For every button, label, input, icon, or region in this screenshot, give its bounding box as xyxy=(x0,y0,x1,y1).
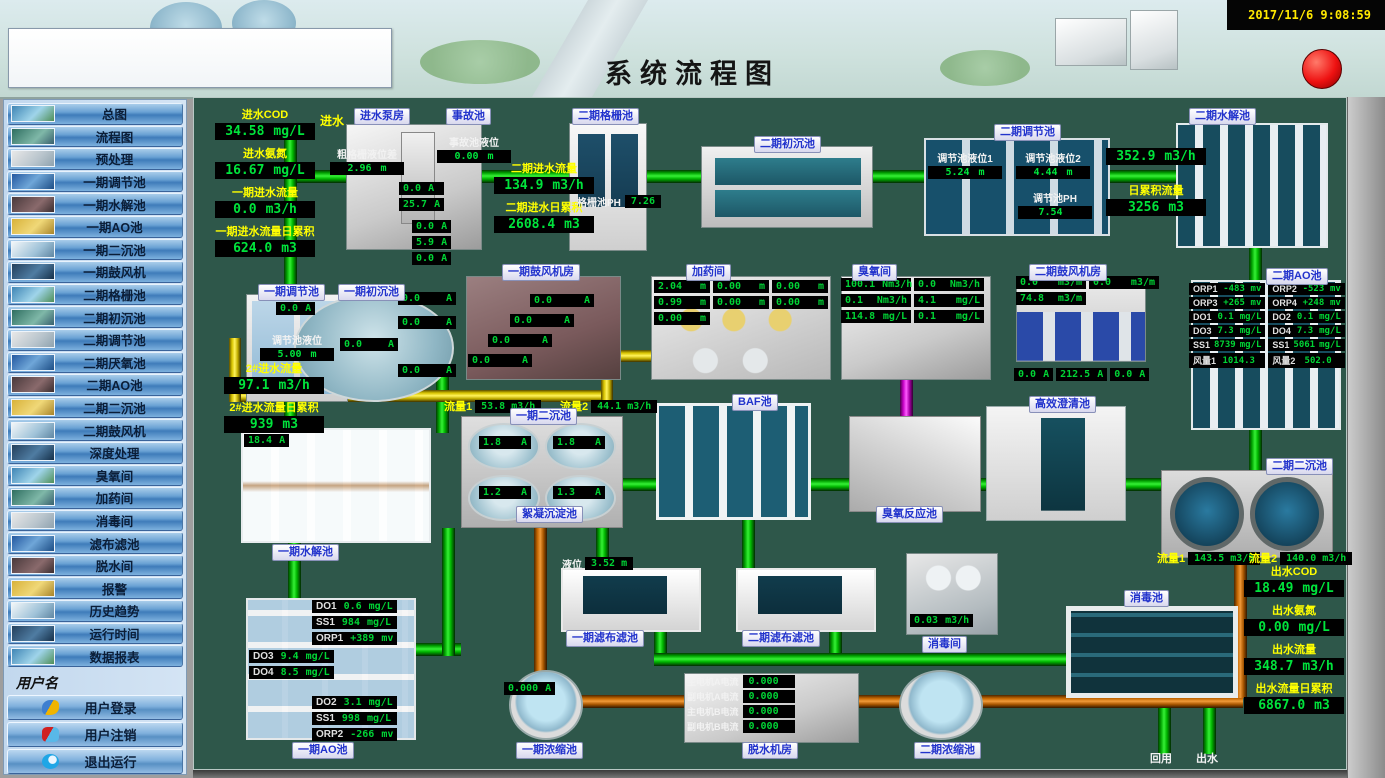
current-readout: 1.2A xyxy=(479,486,531,499)
sensor-readout: DO47.3mg/L xyxy=(1268,325,1344,337)
sidebar-item[interactable]: 流程图 xyxy=(7,126,183,148)
window-edge xyxy=(193,770,1347,778)
page-title: 系统流程图 xyxy=(0,52,1385,91)
disinfect-pool-image xyxy=(1066,606,1238,698)
sensor-readout: ORP3+265mv xyxy=(1189,297,1265,309)
regulating-level-1: 调节池液位1 5.24m xyxy=(928,150,1002,179)
sidebar-item[interactable]: 二期格栅池 xyxy=(7,284,183,306)
user-buttons: 用户登录 用户注销 退出运行 xyxy=(6,695,184,774)
sidebar-item[interactable]: 深度处理 xyxy=(7,442,183,464)
ozone-readout: 0.1mg/L xyxy=(914,310,984,323)
hydrolysis-flow: 352.9m3/h xyxy=(1106,148,1206,165)
sidebar-item[interactable]: 报警 xyxy=(7,577,183,599)
sidebar-nav: 总图 流程图 预处理 一期调节池 xyxy=(6,103,184,667)
sensor-readout: DO23.1mg/L xyxy=(312,696,397,709)
sidebar-item[interactable]: 二期厌氧池 xyxy=(7,352,183,374)
thumbnail-icon xyxy=(11,196,55,213)
current-readout: 1.8A xyxy=(479,436,531,449)
station-label-disinfect-pool[interactable]: 消毒池 xyxy=(1124,590,1169,607)
sensor-readout: 风量2502.0 xyxy=(1268,353,1344,368)
sensor-readout: DO48.5mg/L xyxy=(249,666,334,679)
reuse-label: 回用 xyxy=(1150,750,1172,766)
user-button[interactable]: 用户注销 xyxy=(7,722,183,747)
current-readout: 212.5A xyxy=(1056,368,1107,381)
thumbnail-icon xyxy=(11,241,55,258)
sidebar-item-label: 二期格栅池 xyxy=(55,285,182,304)
sidebar-item[interactable]: 二期调节池 xyxy=(7,329,183,351)
thumbnail-icon xyxy=(11,354,55,371)
thumbnail-icon xyxy=(11,263,55,280)
regulating-level-2: 调节池液位2 4.44m xyxy=(1016,150,1090,179)
thumbnail-icon xyxy=(11,286,55,303)
user-login-icon xyxy=(42,700,59,715)
sidebar-item[interactable]: 二期鼓风机 xyxy=(7,419,183,441)
regulating-ph: 调节池PH 7.54 xyxy=(1018,190,1092,219)
inflow2-metrics: 2#进水流量 97.1m3/h 2#进水流量日累积 939m3 xyxy=(224,360,324,433)
sensor-readout: SS18739mg/L xyxy=(1189,339,1265,351)
station-label-filter1[interactable]: 一期滤布滤池 xyxy=(566,630,644,647)
station-label-phase1-hydrolysis[interactable]: 一期水解池 xyxy=(272,544,339,561)
sensor-readout: ORP1+389mv xyxy=(312,632,397,645)
station-label-disinfect-room[interactable]: 消毒间 xyxy=(922,636,967,653)
sidebar: 总图 流程图 预处理 一期调节池 xyxy=(3,99,187,775)
metric: 进水COD 34.58mg/L xyxy=(215,106,315,140)
sidebar-item[interactable]: 数据报表 xyxy=(7,645,183,667)
sidebar-item[interactable]: 一期调节池 xyxy=(7,171,183,193)
sidebar-item-label: 流程图 xyxy=(55,127,182,146)
station-label-phase1-blower[interactable]: 一期鼓风机房 xyxy=(502,264,580,281)
station-label-phase1-secondary[interactable]: 一期二沉池 xyxy=(510,408,577,425)
current-readout: 0.0A xyxy=(398,292,456,305)
motor-current-row: 副电机B电流0.000 xyxy=(687,720,795,733)
sidebar-item[interactable]: 一期AO池 xyxy=(7,216,183,238)
current-readout: 0.0A xyxy=(468,354,532,367)
user-button-label: 用户登录 xyxy=(59,698,182,717)
user-button[interactable]: 用户登录 xyxy=(7,695,183,720)
sidebar-item[interactable]: 总图 xyxy=(7,103,183,125)
sidebar-item-label: 一期水解池 xyxy=(55,195,182,214)
station-label-phase1-ao[interactable]: 一期AO池 xyxy=(292,742,354,759)
thumbnail-icon xyxy=(11,535,55,552)
sensor-readout: ORP4+248mv xyxy=(1268,297,1344,309)
ozone-readout: 0.1Nm3/h xyxy=(841,294,911,307)
station-label-ozone-reaction[interactable]: 臭氧反应池 xyxy=(876,506,943,523)
sidebar-item[interactable]: 脱水间 xyxy=(7,555,183,577)
screen-ph: 格栅池PH 7.26 xyxy=(577,194,661,209)
sidebar-item-label: 一期调节池 xyxy=(55,172,182,191)
current-readout: 0.0A xyxy=(1014,368,1053,381)
ozone-reaction-image xyxy=(849,416,981,512)
header-banner: 系统流程图 2017/11/6 9:08:59 xyxy=(0,0,1385,99)
sidebar-item-label: 深度处理 xyxy=(55,443,182,462)
metric: 2#进水流量 97.1m3/h xyxy=(224,360,324,394)
metric: 一期进水流量 0.0m3/h xyxy=(215,184,315,218)
thumbnail-icon xyxy=(11,580,55,597)
sidebar-item[interactable]: 二期AO池 xyxy=(7,374,183,396)
station-label-thickener1[interactable]: 一期浓缩池 xyxy=(516,742,583,759)
sidebar-item[interactable]: 加药间 xyxy=(7,487,183,509)
current-readout: 1.3A xyxy=(553,486,605,499)
sidebar-item-label: 消毒间 xyxy=(55,511,182,530)
outflow-label: 出水 xyxy=(1196,750,1218,766)
level-readout: 0.99m xyxy=(654,296,710,309)
thumbnail-icon xyxy=(11,625,55,642)
level-readout: 0.00m xyxy=(713,296,769,309)
station-label-baf[interactable]: BAF池 xyxy=(732,394,778,411)
sidebar-item-label: 运行时间 xyxy=(55,624,182,643)
phase2-blower-currents: 0.0A212.5A0.0A xyxy=(1014,368,1149,381)
sidebar-item-label: 二期AO池 xyxy=(55,375,182,394)
sidebar-item-label: 报警 xyxy=(55,579,182,598)
sensor-readout: DO10.1mg/L xyxy=(1189,311,1265,323)
ozone-readout: 114.8mg/L xyxy=(841,310,911,323)
metric: 出水COD 18.49mg/L xyxy=(1244,563,1344,597)
station-label-thickener2[interactable]: 二期浓缩池 xyxy=(914,742,981,759)
station-label-phase2-regulating[interactable]: 二期调节池 xyxy=(994,124,1061,141)
filter1-level: 液位 3.52m xyxy=(562,556,633,571)
sidebar-item-label: 滤布滤池 xyxy=(55,534,182,553)
sidebar-item[interactable]: 一期鼓风机 xyxy=(7,261,183,283)
timestamp: 2017/11/6 9:08:59 xyxy=(1248,8,1371,22)
clarifier-circle xyxy=(1170,477,1244,551)
metric: 二期进水流量 134.9m3/h xyxy=(494,160,594,194)
sensor-readout: DO39.4mg/L xyxy=(249,650,334,663)
station-label-phase2-primary[interactable]: 二期初沉池 xyxy=(754,136,821,153)
station-label-phase2-secondary[interactable]: 二期二沉池 xyxy=(1266,458,1333,475)
current-readout: 1.8A xyxy=(553,436,605,449)
sensor-readout: SS1998mg/L xyxy=(312,712,397,725)
hydrolysis-daily-total: 日累积流量 3256m3 xyxy=(1106,182,1206,216)
station-label-flocculation[interactable]: 絮凝沉淀池 xyxy=(516,506,583,523)
level-readout: 0.00m xyxy=(772,296,828,309)
station-label-dosing-room[interactable]: 加药间 xyxy=(686,264,731,281)
thumbnail-icon xyxy=(11,218,55,235)
pipe xyxy=(654,653,1074,666)
metric: 出水流量 348.7m3/h xyxy=(1244,641,1344,675)
thumbnail-icon xyxy=(11,557,55,574)
sensor-readout: SS15061mg/L xyxy=(1268,339,1344,351)
motor-current-row: 主电机A电流0.000 xyxy=(687,675,795,688)
current-readout: 0.0A xyxy=(488,334,552,347)
sidebar-item[interactable]: 消毒间 xyxy=(7,510,183,532)
thumbnail-icon xyxy=(11,331,55,348)
thumbnail-icon xyxy=(11,376,55,393)
station-label-phase2-blower[interactable]: 二期鼓风机房 xyxy=(1029,264,1107,281)
sidebar-item-label: 一期鼓风机 xyxy=(55,262,182,281)
accident-pool-metrics: 事故池液位 0.00m xyxy=(437,134,511,163)
sidebar-item-label: 二期鼓风机 xyxy=(55,421,182,440)
metric: 事故池液位 0.00m xyxy=(437,134,511,163)
thumbnail-icon xyxy=(11,648,55,665)
sidebar-item-label: 总图 xyxy=(55,104,182,123)
station-label-ozone-room[interactable]: 臭氧间 xyxy=(852,264,897,281)
sidebar-item[interactable]: 一期二沉池 xyxy=(7,239,183,261)
station-label-phase1-primary[interactable]: 一期初沉池 xyxy=(338,284,405,301)
flow-readout: 0.03m3/h xyxy=(910,614,973,627)
sidebar-item-label: 加药间 xyxy=(55,488,182,507)
user-button[interactable]: 退出运行 xyxy=(7,749,183,774)
thumbnail-icon xyxy=(11,489,55,506)
filter1-image xyxy=(561,568,701,632)
inlet-metrics: 进水COD 34.58mg/L 进水氨氮 16.67mg/L 一期进水流量 0.… xyxy=(202,106,328,257)
sidebar-item-label: 预处理 xyxy=(55,149,182,168)
current-readout: 0.0A xyxy=(399,182,444,195)
phase2-secondary-image xyxy=(1161,470,1333,558)
sidebar-item-label: 一期AO池 xyxy=(55,217,182,236)
exit-run-icon xyxy=(42,754,59,769)
ozone-readout: 0.0Nm3/h xyxy=(914,278,984,291)
sensor-readout: DO37.3mg/L xyxy=(1189,325,1265,337)
alarm-indicator[interactable] xyxy=(1302,49,1342,89)
user-button-label: 用户注销 xyxy=(59,725,182,744)
phase1-ao-group3: DO23.1mg/LSS1998mg/LORP2-266mv xyxy=(312,696,397,741)
current-readout: 0.0A xyxy=(398,316,456,329)
phase2-ao-readouts: ORP1-483mvORP2-523mvORP3+265mvORP4+248mv… xyxy=(1189,283,1345,368)
sidebar-item[interactable]: 预处理 xyxy=(7,148,183,170)
level-readout: 0.00m xyxy=(713,280,769,293)
thumbnail-icon xyxy=(11,602,55,619)
sensor-readout: DO10.6mg/L xyxy=(312,600,397,613)
thumbnail-icon xyxy=(11,512,55,529)
metric: 一期进水流量日累积 624.0m3 xyxy=(215,223,315,257)
pump-currents-2: 0.0A5.9A0.0A xyxy=(412,220,451,265)
sidebar-item-label: 历史趋势 xyxy=(55,601,182,620)
motor-current-row: 副电机A电流0.000 xyxy=(687,690,795,703)
clarifier-image xyxy=(986,406,1126,521)
station-label-pump-house[interactable]: 进水泵房 xyxy=(354,108,410,125)
dosing-levels: 2.04m0.00m0.00m0.99m0.00m0.00m0.00m xyxy=(654,280,830,325)
coarse-screen-level: 粗格栅液位差 2.96m xyxy=(330,146,404,175)
metric: 进水氨氮 16.67mg/L xyxy=(215,145,315,179)
sidebar-item-label: 臭氧间 xyxy=(55,466,182,485)
level-readout: 2.04m xyxy=(654,280,710,293)
sensor-readout: ORP1-483mv xyxy=(1189,283,1265,295)
sensor-readout: DO20.1mg/L xyxy=(1268,311,1344,323)
thumbnail-icon xyxy=(11,467,55,484)
current-readout: 0.0A xyxy=(510,314,574,327)
level-readout: 0.00m xyxy=(654,312,710,325)
station-label-phase2-ao[interactable]: 二期AO池 xyxy=(1266,268,1328,285)
sidebar-item[interactable]: 二期二沉池 xyxy=(7,397,183,419)
sidebar-item[interactable]: 历史趋势 xyxy=(7,600,183,622)
sensor-readout: ORP2-266mv xyxy=(312,728,397,741)
current-readout: 0.0A xyxy=(340,338,398,351)
filter2-image xyxy=(736,568,876,632)
sidebar-item-label: 数据报表 xyxy=(55,647,182,666)
metric: 出水流量日累积 6867.0m3 xyxy=(1244,680,1344,714)
thumbnail-icon xyxy=(11,128,55,145)
sensor-readout: 风量11014.3 xyxy=(1189,353,1265,368)
level-readout: 0.00m xyxy=(772,280,828,293)
user-logout-icon xyxy=(42,727,59,742)
outlet-metrics: 出水COD 18.49mg/L 出水氨氮 0.00mg/L 出水流量 348.7… xyxy=(1242,563,1346,714)
current-readout: 18.4A xyxy=(244,434,289,447)
sidebar-item-label: 脱水间 xyxy=(55,556,182,575)
ozone-readouts: 100.1Nm3/h0.0Nm3/h0.1Nm3/h4.1mg/L114.8mg… xyxy=(841,278,991,323)
dewatering-currents: 主电机A电流0.000 副电机A电流0.000 主电机B电流0.000 副电机B… xyxy=(687,675,795,733)
flow-diagram: 进水COD 34.58mg/L 进水氨氮 16.67mg/L 一期进水流量 0.… xyxy=(193,97,1347,770)
phase1-blower-currents: 0.0A0.0A0.0A0.0A xyxy=(468,294,594,367)
user-button-label: 退出运行 xyxy=(59,752,182,771)
username-label: 用户名 xyxy=(16,673,180,693)
current-readout: 0.0A xyxy=(1110,368,1149,381)
current-readout: 5.9A xyxy=(412,236,451,249)
thumbnail-icon xyxy=(11,309,55,326)
phase2-primary-image xyxy=(701,146,873,228)
current-readout: 0.0A xyxy=(398,364,456,377)
thickener1-image xyxy=(509,670,583,740)
pump-currents: 0.0A25.7A xyxy=(399,182,444,211)
baf-image xyxy=(656,403,811,520)
station-label-phase1-regulating[interactable]: 一期调节池 xyxy=(258,284,325,301)
station-label-clarifier[interactable]: 高效澄清池 xyxy=(1029,396,1096,413)
pipe xyxy=(442,528,455,656)
current-readout: 0.000A xyxy=(504,682,555,695)
flow-readout: 74.8m3/m xyxy=(1016,292,1086,305)
clock-strip: 2017/11/6 9:08:59 xyxy=(1227,0,1385,30)
sensor-readout: SS1984mg/L xyxy=(312,616,397,629)
metric: 2#进水流量日累积 939m3 xyxy=(224,399,324,433)
sidebar-item-label: 二期初沉池 xyxy=(55,308,182,327)
sidebar-item-label: 二期厌氧池 xyxy=(55,353,182,372)
sidebar-item[interactable]: 滤布滤池 xyxy=(7,532,183,554)
current-readout: 0.0A xyxy=(412,220,451,233)
station-label-phase2-hydrolysis[interactable]: 二期水解池 xyxy=(1189,108,1256,125)
inlet-label: 进水 xyxy=(320,112,344,129)
thumbnail-icon xyxy=(11,422,55,439)
sidebar-item-label: 二期二沉池 xyxy=(55,398,182,417)
phase1-ao-group2: DO39.4mg/LDO48.5mg/L xyxy=(249,650,334,679)
sidebar-item-label: 一期二沉池 xyxy=(55,240,182,259)
phase1-ao-group1: DO10.6mg/LSS1984mg/LORP1+389mv xyxy=(312,600,397,645)
sidebar-item[interactable]: 二期初沉池 xyxy=(7,306,183,328)
thumbnail-icon xyxy=(11,173,55,190)
window-edge xyxy=(1347,97,1385,778)
current-readout: 0.0A xyxy=(412,252,451,265)
thumbnail-icon xyxy=(11,150,55,167)
pipe xyxy=(742,516,755,568)
clarifier-circle xyxy=(1250,477,1324,551)
current-readout: 0.0A xyxy=(530,294,594,307)
scada-window: 系统流程图 2017/11/6 9:08:59 总图 流程图 xyxy=(0,0,1385,778)
station-label-accident-pool[interactable]: 事故池 xyxy=(446,108,491,125)
thumbnail-icon xyxy=(11,444,55,461)
sidebar-item[interactable]: 臭氧间 xyxy=(7,465,183,487)
thickener2-image xyxy=(899,670,983,740)
thumbnail-icon xyxy=(11,399,55,416)
metric: 出水氨氮 0.00mg/L xyxy=(1244,602,1344,636)
motor-current-row: 主电机B电流0.000 xyxy=(687,705,795,718)
thumbnail-icon xyxy=(11,105,55,122)
station-label-filter2[interactable]: 二期滤布滤池 xyxy=(742,630,820,647)
sidebar-item-label: 二期调节池 xyxy=(55,330,182,349)
ozone-readout: 4.1mg/L xyxy=(914,294,984,307)
sidebar-item[interactable]: 运行时间 xyxy=(7,623,183,645)
sidebar-item[interactable]: 一期水解池 xyxy=(7,193,183,215)
current-readout: 25.7A xyxy=(399,198,444,211)
station-label-dewatering[interactable]: 脱水机房 xyxy=(742,742,798,759)
station-label-phase2-screen[interactable]: 二期格栅池 xyxy=(572,108,639,125)
